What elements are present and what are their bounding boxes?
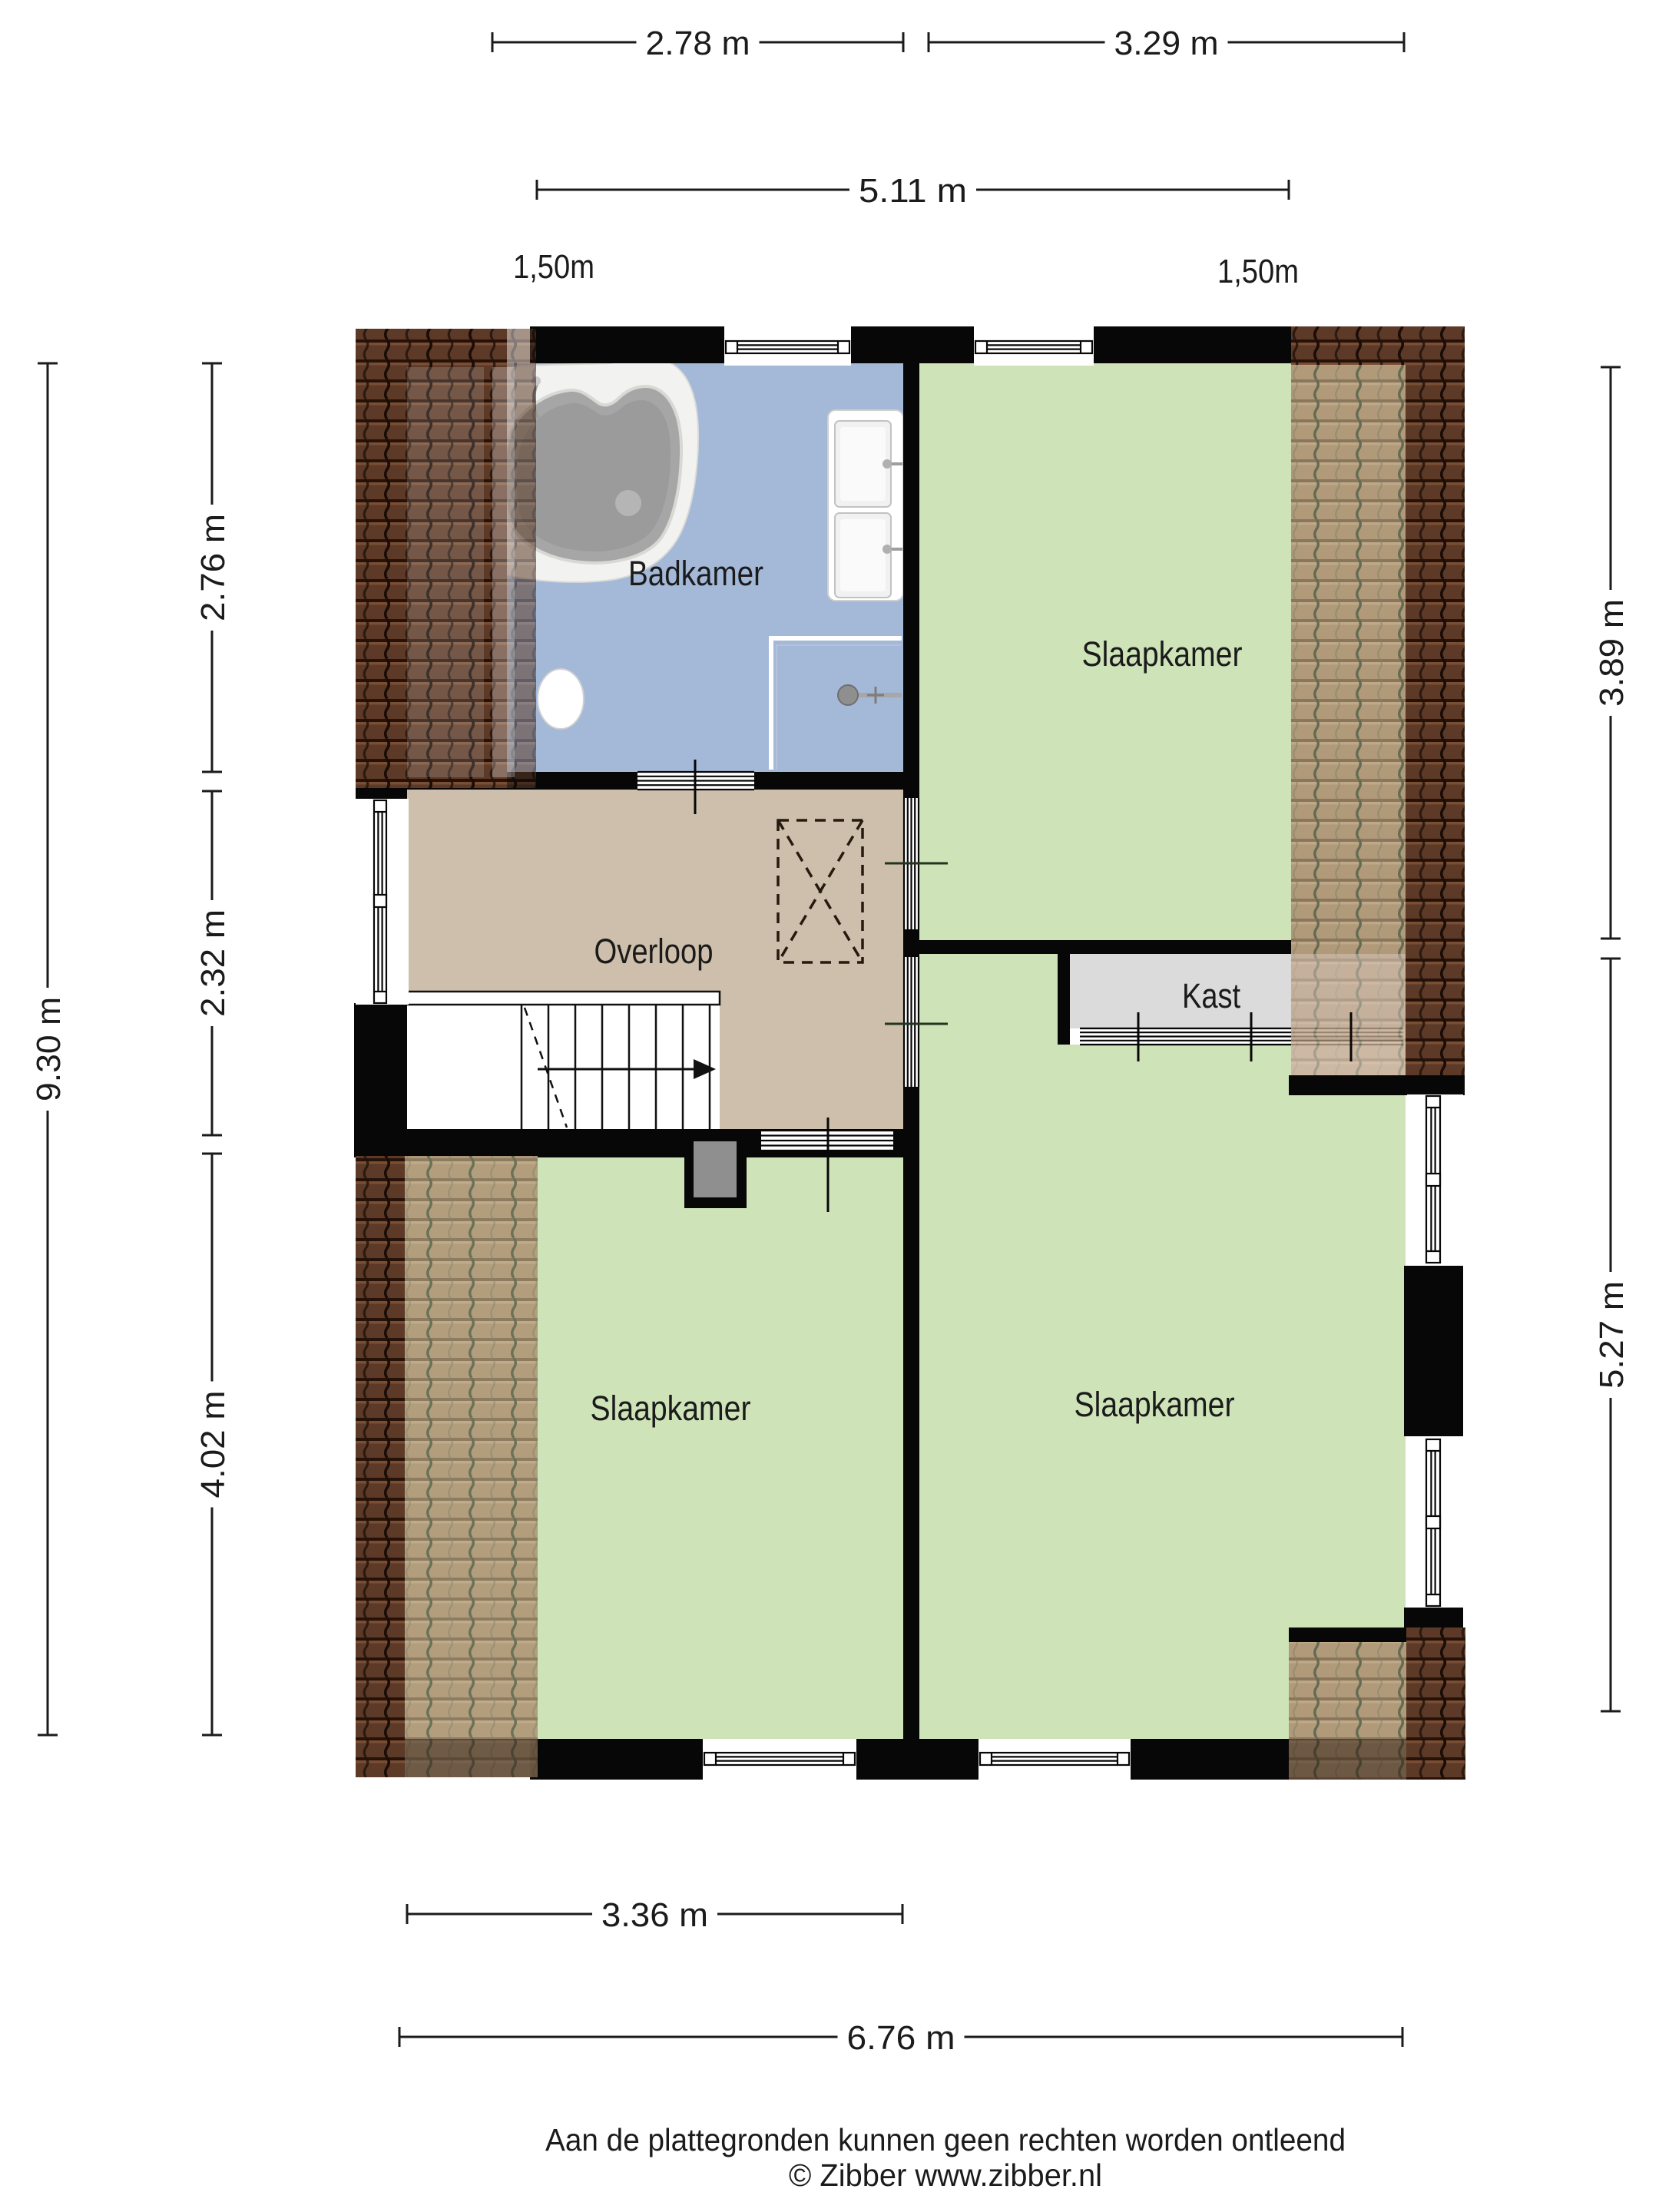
- svg-text:3.29 m: 3.29 m: [1114, 25, 1219, 62]
- svg-text:1,50m: 1,50m: [513, 248, 594, 286]
- svg-text:5.27 m: 5.27 m: [1593, 1281, 1631, 1389]
- svg-text:1,50m: 1,50m: [1217, 253, 1299, 290]
- svg-text:Aan de plattegronden kunnen ge: Aan de plattegronden kunnen geen rechten…: [545, 2122, 1346, 2157]
- svg-text:2.76 m: 2.76 m: [194, 514, 232, 621]
- svg-text:4.02 m: 4.02 m: [194, 1391, 232, 1498]
- svg-text:Slaapkamer: Slaapkamer: [1082, 634, 1243, 674]
- svg-text:3.36 m: 3.36 m: [601, 1896, 708, 1934]
- svg-text:Overloop: Overloop: [594, 932, 714, 971]
- svg-text:6.76 m: 6.76 m: [847, 2019, 955, 2057]
- svg-text:5.11 m: 5.11 m: [859, 172, 967, 210]
- svg-text:2.32 m: 2.32 m: [194, 909, 232, 1017]
- svg-text:Slaapkamer: Slaapkamer: [1075, 1385, 1235, 1424]
- svg-text:© Zibber www.zibber.nl: © Zibber www.zibber.nl: [789, 2157, 1102, 2193]
- svg-text:Slaapkamer: Slaapkamer: [591, 1389, 751, 1428]
- svg-text:9.30 m: 9.30 m: [30, 997, 68, 1101]
- svg-text:Badkamer: Badkamer: [628, 554, 763, 593]
- svg-text:3.89 m: 3.89 m: [1593, 599, 1631, 707]
- svg-text:Kast: Kast: [1182, 976, 1240, 1015]
- svg-text:2.78 m: 2.78 m: [646, 25, 750, 62]
